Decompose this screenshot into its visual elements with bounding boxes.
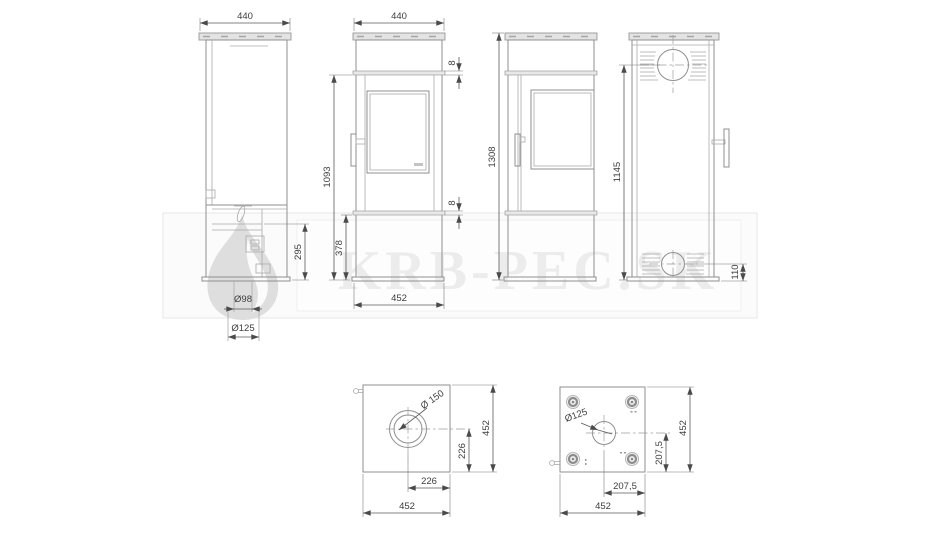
dim-front-a-door-height: 1093 (322, 166, 333, 187)
dim-front-a-ledge-bottom: 8 (447, 200, 458, 205)
dim-top-offset-y: 226 (457, 443, 468, 459)
stove-dimension-drawing: KRB-PEC.SK (0, 0, 950, 534)
top-knob (354, 389, 359, 394)
dim-front-a-ledge-top: 8 (447, 60, 458, 65)
dim-top-width: 452 (399, 501, 415, 512)
bottom-knob (550, 461, 555, 466)
door-handle (515, 134, 520, 166)
dim-bottom-offset-x: 207,5 (613, 481, 637, 492)
dim-front-a-width: 440 (391, 11, 407, 22)
dim-bottom-width: 452 (595, 501, 611, 512)
dim-top-depth: 452 (481, 420, 492, 436)
dim-side-width: 440 (237, 11, 253, 22)
dim-bottom-depth: 452 (678, 420, 689, 436)
bottom-view-geometry (550, 387, 671, 472)
door-glass-logo-mark (414, 163, 423, 166)
dim-side-adapter: Ø125 (231, 323, 254, 334)
dim-front-b-total-height: 1308 (487, 146, 498, 167)
dim-top-flue-diameter: Ø 150 (419, 388, 447, 412)
dim-bottom-inlet-diameter: Ø125 (563, 407, 589, 425)
technical-drawing-page: KRB-PEC.SK (0, 0, 950, 534)
top-view-geometry (354, 385, 474, 472)
top-view: Ø 150 226 452 226 452 (354, 385, 498, 517)
stove-feet (567, 396, 639, 466)
dim-side-flue-stub: Ø98 (234, 294, 252, 305)
top-view-dimensions: Ø 150 226 452 226 452 (363, 385, 497, 517)
dim-front-a-base-height: 378 (334, 240, 345, 256)
bottom-view: Ø125 207,5 452 207,5 452 (550, 387, 695, 517)
dim-front-a-base-width: 452 (391, 293, 407, 304)
door-handle (351, 134, 356, 166)
dim-rear-inlet-center-height: 110 (730, 264, 741, 279)
dim-rear-flue-center-height: 1145 (612, 162, 623, 182)
dim-top-offset-x: 226 (421, 476, 437, 487)
dim-bottom-offset-y: 207,5 (654, 441, 665, 465)
door-handle-rear (724, 129, 729, 167)
dim-side-lower-height: 295 (293, 244, 304, 260)
